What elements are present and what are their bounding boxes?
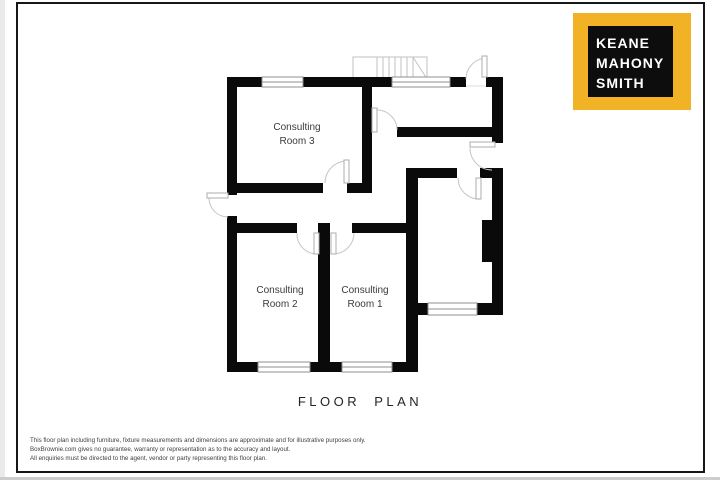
room-label-line: Room 1: [315, 298, 415, 312]
agency-logo: KEANE MAHONY SMITH: [573, 13, 691, 110]
room-label-line: Consulting: [315, 284, 415, 298]
disclaimer-line: This floor plan including furniture, fix…: [30, 436, 670, 445]
disclaimer-line: BoxBrownie.com gives no guarantee, warra…: [30, 445, 670, 454]
room-label-line: Room 3: [247, 135, 347, 149]
floor-plan-title: FLOOR PLAN: [200, 394, 520, 409]
room-label-line: Consulting: [247, 121, 347, 135]
staircase: [353, 57, 427, 79]
agency-logo-panel: KEANE MAHONY SMITH: [588, 26, 673, 97]
agency-logo-line: MAHONY: [596, 53, 673, 73]
floor-plan-page: Consulting Room 3 Consulting Room 2 Cons…: [0, 0, 720, 480]
room-label-consulting-room-1: Consulting Room 1: [315, 284, 415, 312]
disclaimer-line: All enquiries must be directed to the ag…: [30, 454, 670, 463]
disclaimer-text: This floor plan including furniture, fix…: [30, 436, 670, 463]
room-label-consulting-room-3: Consulting Room 3: [247, 121, 347, 149]
agency-logo-line: KEANE: [596, 33, 673, 53]
agency-logo-line: SMITH: [596, 73, 673, 93]
